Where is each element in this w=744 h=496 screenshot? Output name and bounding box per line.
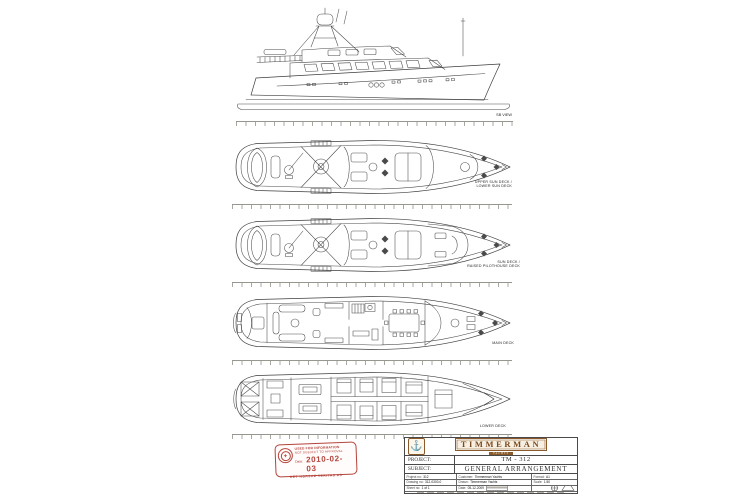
- anchor-emblem-icon: ⚓: [408, 438, 425, 455]
- deck-plan-sun-deck: [223, 209, 515, 281]
- subject-label: SUBJECT:: [405, 465, 455, 474]
- deck-label-upper-sun-deck: UPPER SUN DECK / LOWER SUN DECK: [441, 180, 512, 189]
- deck-plan-upper-sun-deck: [223, 131, 515, 203]
- project-label: PROJECT:: [405, 456, 455, 464]
- drawing-sheet: SB VIEW UPPER SUN DECK / LOWER SUN DECK: [0, 0, 744, 496]
- stamp-footer: DET NORSKE VERITAS AS: [279, 473, 354, 480]
- fine-print-box: [486, 486, 508, 491]
- title-block-fine-print: [405, 492, 577, 493]
- title-block-grid: Project no:312 Customer:Timmerman Yachts…: [405, 474, 577, 491]
- dnv-seal-icon: ✚: [278, 448, 294, 464]
- side-view-label: SB VIEW: [468, 113, 512, 117]
- dnv-approval-stamp: ✚ USED FOR INFORMATION NOT SUBJECT TO AP…: [274, 441, 357, 477]
- side-view-drawing: [232, 5, 517, 123]
- deck-label-sun-deck: SUN DECK / RAISED PILOTHOUSE DECK: [436, 260, 520, 269]
- deck-label-main-deck: MAIN DECK: [450, 341, 514, 345]
- stamp-date-value: 2010-02-03: [306, 453, 354, 473]
- project-value: TM - 312: [455, 456, 577, 463]
- brand-ribbon: YACHTS: [489, 452, 513, 455]
- stamp-date-label: Date:: [295, 459, 303, 463]
- scale-ruler: [236, 121, 513, 126]
- brand-logo: TIMMERMAN: [455, 438, 548, 451]
- deck-label-lower-deck: LOWER DECK: [440, 424, 506, 428]
- subject-value: GENERAL ARRANGEMENT: [455, 465, 577, 473]
- deck-plan-main-deck: [223, 287, 515, 359]
- title-block-logo-row: ⚓ TIMMERMAN YACHTS: [405, 438, 577, 456]
- title-block: ⚓ TIMMERMAN YACHTS PROJECT: TM - 312 SUB…: [404, 437, 578, 494]
